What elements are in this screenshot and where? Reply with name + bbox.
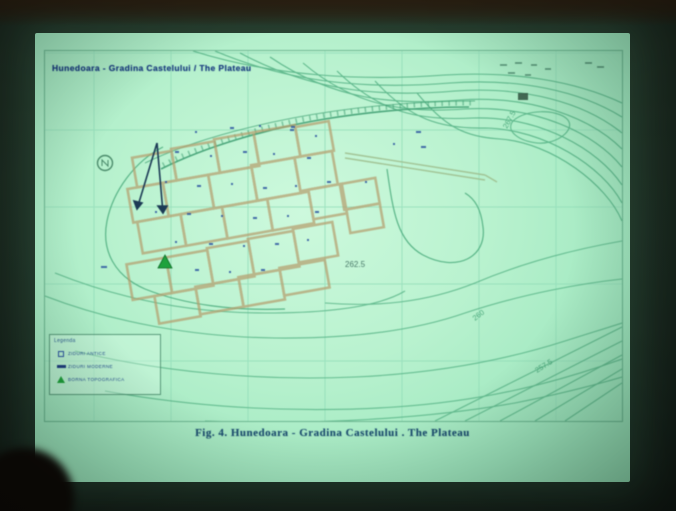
legend-box: Legenda ziduri antice ziduri moderne bor… — [49, 334, 161, 395]
ramp-path — [345, 153, 497, 182]
slide: 267.5 262.5 260 257.5 Hunedoara - Gradin… — [35, 33, 630, 482]
legend-item-walls-modern: ziduri moderne — [54, 360, 156, 373]
map-title: Hunedoara - Gradina Castelului / The Pla… — [52, 63, 251, 73]
contour-elevation-labels: 267.5 262.5 260 257.5 — [345, 109, 554, 375]
legend-title: Legenda — [54, 338, 156, 344]
legend-item-walls-ancient: ziduri antice — [54, 347, 156, 360]
room-photo: 267.5 262.5 260 257.5 Hunedoara - Gradin… — [0, 0, 676, 511]
projector-screen: 267.5 262.5 260 257.5 Hunedoara - Gradin… — [35, 33, 630, 482]
contour-label-262: 262.5 — [345, 260, 366, 269]
figure-caption: Fig. 4. Hunedoara - Gradina Castelului .… — [35, 427, 630, 439]
north-compass-icon — [98, 156, 113, 171]
contour-label-257: 257.5 — [533, 357, 554, 375]
map-frame: 267.5 262.5 260 257.5 Hunedoara - Gradin… — [44, 50, 623, 422]
ceiling-edge — [0, 0, 676, 26]
blue-square-icon — [54, 351, 68, 357]
scrub-dashes — [500, 63, 604, 75]
legend-item-survey-marker: borna topografica — [54, 373, 156, 386]
green-triangle-icon — [54, 376, 68, 383]
small-building — [518, 93, 528, 100]
blue-bar-icon — [54, 365, 68, 368]
building-walls — [108, 113, 394, 328]
